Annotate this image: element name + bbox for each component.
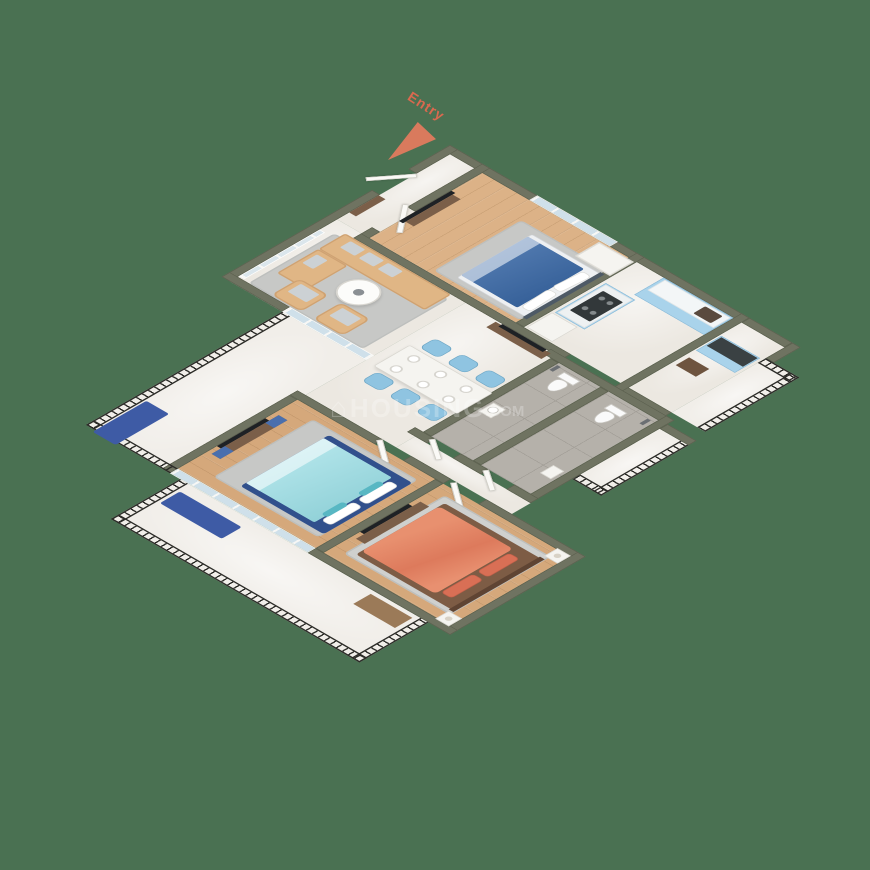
watermark-text-main: HOUSING	[350, 393, 485, 424]
watermark-house-icon: ⌂	[330, 392, 347, 424]
entry-marker: Entry	[380, 96, 490, 180]
watermark: ⌂ HOUSING .COM	[330, 392, 590, 424]
entry-arrow-icon	[388, 122, 436, 160]
entry-label: Entry	[405, 88, 448, 124]
watermark-text-suffix: .COM	[485, 403, 524, 420]
floorplan-scene: Entry ⌂ HOUSING .COM	[0, 0, 870, 870]
